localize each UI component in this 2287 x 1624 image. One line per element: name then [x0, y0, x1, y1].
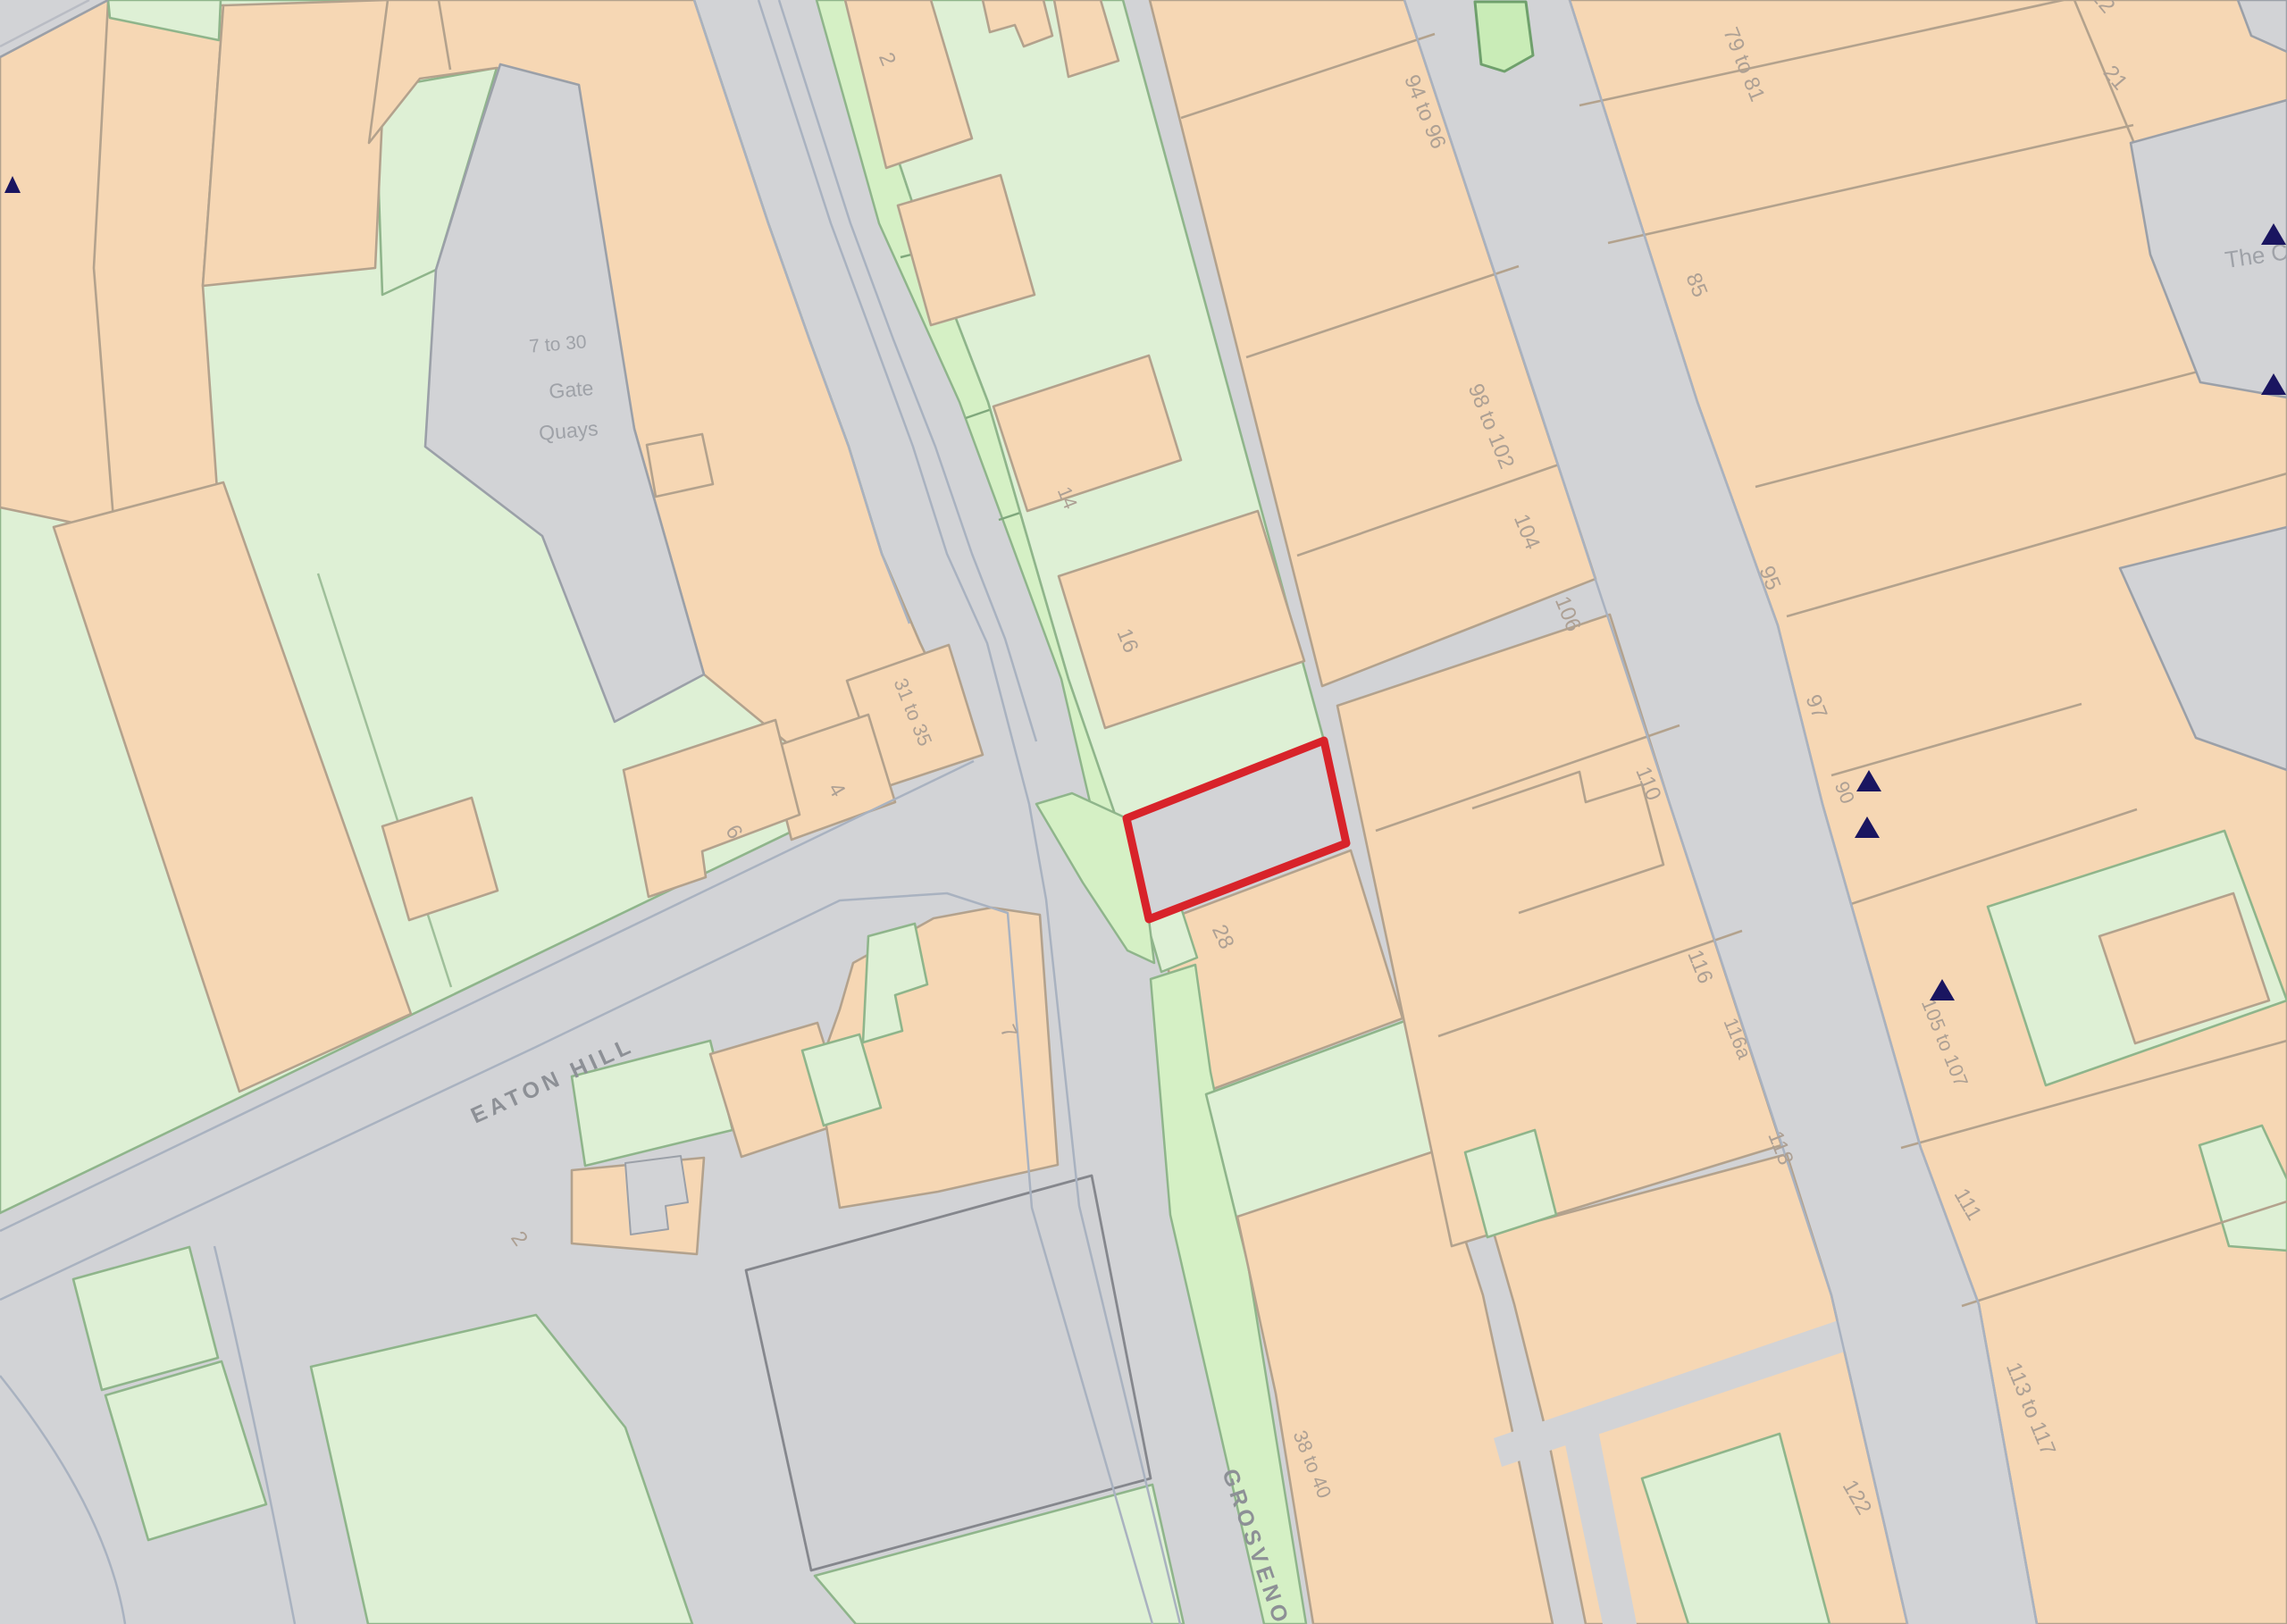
- svg-text:Gate: Gate: [548, 376, 594, 403]
